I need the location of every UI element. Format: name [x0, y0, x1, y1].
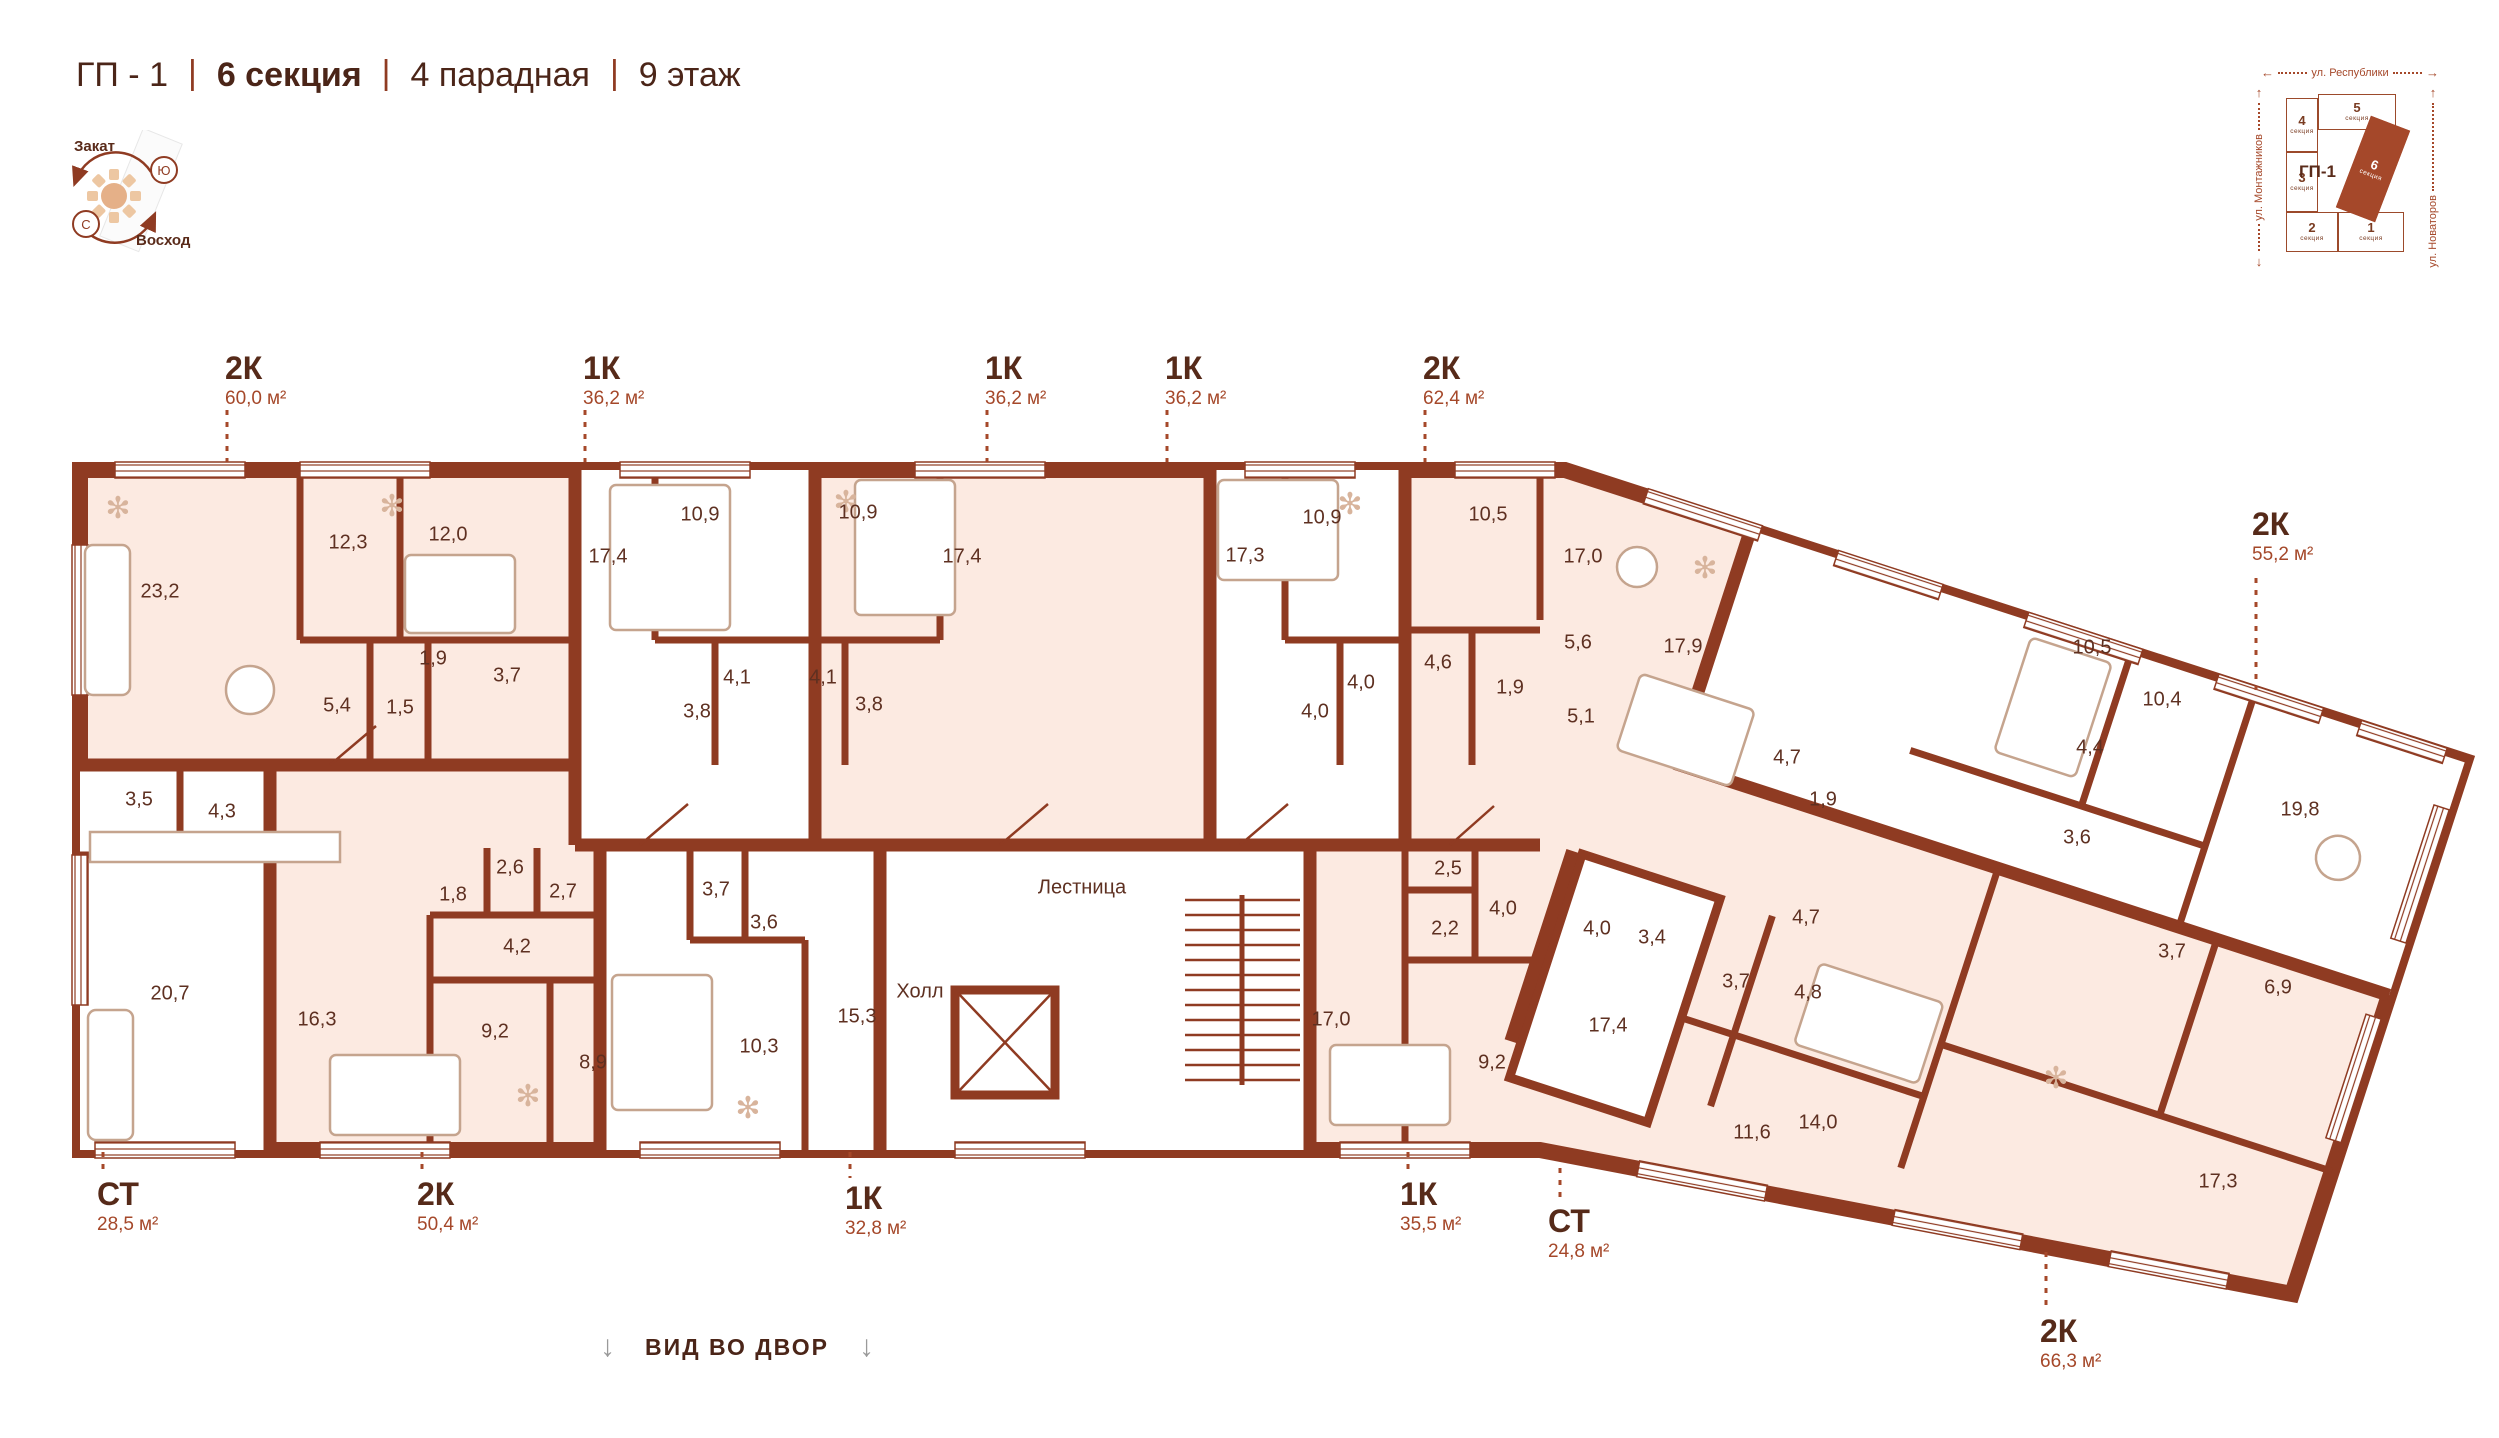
room-area-label: 2,7	[549, 881, 577, 904]
room-area-label: 1,5	[386, 697, 414, 720]
room-area-label: 10,5	[1469, 504, 1508, 527]
room-area-label: 3,7	[2158, 941, 2186, 964]
callout-apt-st-24[interactable]: СТ 24,8м²	[1548, 1205, 1609, 1263]
room-area-label: 4,0	[1489, 898, 1517, 921]
room-area-label: 4,1	[809, 667, 837, 690]
room-area-label: 11,6	[1733, 1122, 1770, 1145]
room-area-label: 12,0	[429, 524, 468, 547]
room-area-label: 3,7	[1722, 971, 1750, 994]
room-area-label: 1,9	[1809, 789, 1837, 812]
room-area-label: 10,9	[1303, 507, 1342, 530]
room-area-label: 10,4	[2143, 689, 2182, 712]
svg-text:✻: ✻	[2043, 1061, 2068, 1096]
room-area-label: 4,1	[723, 667, 751, 690]
room-area-label: 17,4	[589, 546, 628, 569]
room-area-label: 17,3	[1226, 545, 1265, 568]
room-area-label: 3,5	[125, 789, 153, 812]
room-area-label: 9,2	[1478, 1052, 1506, 1075]
room-area-label: 3,8	[683, 701, 711, 724]
room-area-label: 3,7	[702, 879, 730, 902]
room-area-label: 5,4	[323, 695, 351, 718]
room-area-label: 3,7	[493, 665, 521, 688]
room-area-label: 17,0	[1312, 1009, 1351, 1032]
room-area-label: 5,6	[1564, 632, 1592, 655]
room-area-label: 4,4	[2076, 737, 2104, 760]
floor-plan: ✻✻ ✻✻ ✻✻ ✻✻	[0, 0, 2499, 1438]
callout-apt-2k-62[interactable]: 2К 62,4м²	[1423, 352, 1484, 410]
courtyard-view-note: ↓ ВИД ВО ДВОР ↓	[600, 1332, 874, 1362]
stairs-label: Лестница	[1038, 877, 1126, 900]
callout-apt-1k-36-a[interactable]: 1К 36,2м²	[583, 352, 644, 410]
room-area-label: 17,0	[1564, 546, 1603, 569]
hall-label: Холл	[896, 981, 943, 1004]
callout-apt-2k-66[interactable]: 2К 66,3м²	[2040, 1315, 2101, 1373]
room-area-label: 4,3	[208, 801, 236, 824]
callout-apt-1k-35[interactable]: 1К 35,5м²	[1400, 1178, 1461, 1236]
room-area-label: 23,2	[141, 581, 180, 604]
room-area-label: 14,0	[1799, 1112, 1838, 1135]
room-area-label: 4,8	[1794, 982, 1822, 1005]
room-area-label: 10,9	[681, 504, 720, 527]
svg-text:✻: ✻	[105, 491, 130, 526]
svg-text:✻: ✻	[735, 1091, 760, 1126]
room-area-label: 6,9	[2264, 977, 2292, 1000]
room-area-label: 10,9	[839, 502, 878, 525]
room-area-label: 17,9	[1664, 636, 1703, 659]
courtyard-view-label: ВИД ВО ДВОР	[645, 1334, 829, 1361]
room-area-label: 10,5	[2073, 637, 2112, 660]
room-area-label: 4,2	[503, 936, 531, 959]
room-area-label: 9,2	[481, 1021, 509, 1044]
room-area-label: 4,0	[1347, 672, 1375, 695]
callout-apt-2k-60[interactable]: 2К 60,0м²	[225, 352, 286, 410]
svg-text:✻: ✻	[379, 489, 404, 524]
room-area-label: 3,8	[855, 694, 883, 717]
callout-apt-2k-55[interactable]: 2К 55,2м²	[2252, 508, 2313, 566]
room-area-label: 4,7	[1792, 907, 1820, 930]
callout-apt-st-28[interactable]: СТ 28,5м²	[97, 1178, 158, 1236]
room-area-label: 19,8	[2281, 799, 2320, 822]
room-area-label: 12,3	[329, 532, 368, 555]
callout-apt-1k-36-b[interactable]: 1К 36,2м²	[985, 352, 1046, 410]
room-area-label: 17,4	[943, 546, 982, 569]
room-area-label: 8,9	[579, 1052, 607, 1075]
room-area-label: 10,3	[740, 1036, 779, 1059]
room-area-label: 2,2	[1431, 918, 1459, 941]
room-area-label: 4,0	[1301, 701, 1329, 724]
room-area-label: 1,9	[1496, 677, 1524, 700]
room-area-label: 16,3	[298, 1009, 337, 1032]
svg-text:✻: ✻	[1692, 551, 1717, 586]
room-area-label: 17,3	[2199, 1171, 2238, 1194]
callout-apt-1k-32[interactable]: 1К 32,8м²	[845, 1182, 906, 1240]
room-area-label: 15,3	[838, 1006, 877, 1029]
room-area-label: 4,6	[1424, 652, 1452, 675]
room-area-label: 2,5	[1434, 858, 1462, 881]
room-area-label: 2,6	[496, 857, 524, 880]
room-area-label: 1,9	[419, 648, 447, 671]
room-area-label: 3,4	[1638, 927, 1666, 950]
room-area-label: 20,7	[151, 983, 190, 1006]
room-area-label: 17,4	[1589, 1015, 1628, 1038]
arrow-down-icon: ↓	[600, 1332, 615, 1362]
callout-apt-2k-50[interactable]: 2К 50,4м²	[417, 1178, 478, 1236]
svg-text:✻: ✻	[515, 1079, 540, 1114]
callout-apt-1k-36-c[interactable]: 1К 36,2м²	[1165, 352, 1226, 410]
room-area-label: 3,6	[750, 912, 778, 935]
room-area-label: 1,8	[439, 884, 467, 907]
room-area-label: 3,6	[2063, 827, 2091, 850]
room-area-label: 4,0	[1583, 918, 1611, 941]
arrow-down-icon: ↓	[859, 1332, 874, 1362]
room-area-label: 5,1	[1567, 706, 1595, 729]
room-area-label: 4,7	[1773, 747, 1801, 770]
